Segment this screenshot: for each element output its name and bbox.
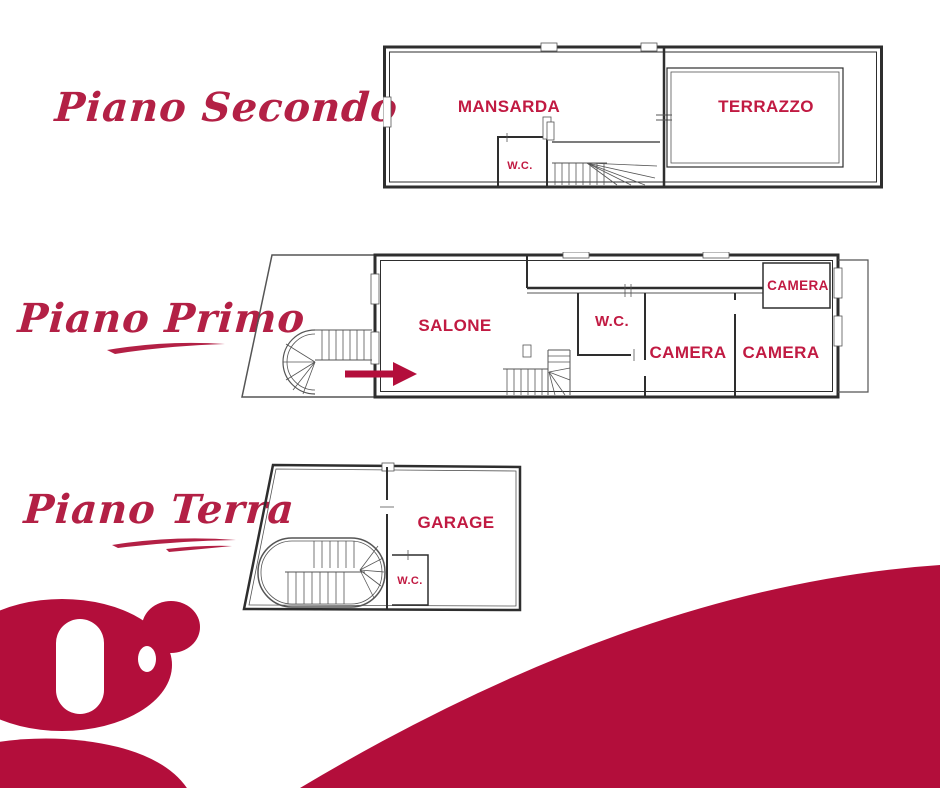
room-label-wc-primo: W.C.	[595, 313, 629, 330]
room-label-camera-right: CAMERA	[742, 343, 819, 362]
room-label-salone: SALONE	[418, 316, 491, 335]
primo-wc-room	[578, 293, 645, 397]
piano-terra-underline-swash	[110, 537, 240, 555]
room-label-camera-mid: CAMERA	[649, 343, 726, 362]
floor-title-piano-secondo: Piano Secondo	[53, 84, 399, 131]
floorplan-piano-terra: GARAGE W.C.	[240, 462, 525, 616]
primo-spiral-stairs	[283, 330, 372, 394]
room-label-terrazzo: TERRAZZO	[718, 97, 814, 116]
logo-letter-g-icon: g	[0, 595, 212, 788]
room-label-camera-top: CAMERA	[767, 278, 829, 293]
room-label-mansarda: MANSARDA	[458, 97, 560, 116]
primo-corridor-walls	[527, 256, 763, 297]
room-label-wc-secondo: W.C.	[507, 160, 532, 172]
real-estate-flyer: g Piano Secondo Piano Primo Piano Terra	[0, 0, 940, 788]
room-label-garage: GARAGE	[417, 513, 494, 532]
floorplan-piano-primo: SALONE W.C. CAMERA CAMERA CAMERA	[233, 252, 878, 404]
secondo-stairs	[547, 122, 660, 185]
room-label-wc-terra: W.C.	[397, 575, 422, 587]
terra-stairs	[258, 538, 385, 607]
piano-primo-underline-swash	[105, 340, 230, 356]
terrace-railing	[667, 68, 843, 167]
primo-stairs	[503, 345, 570, 395]
floorplan-piano-secondo: MANSARDA TERRAZZO W.C.	[383, 42, 893, 192]
secondo-wc-room	[498, 117, 551, 187]
